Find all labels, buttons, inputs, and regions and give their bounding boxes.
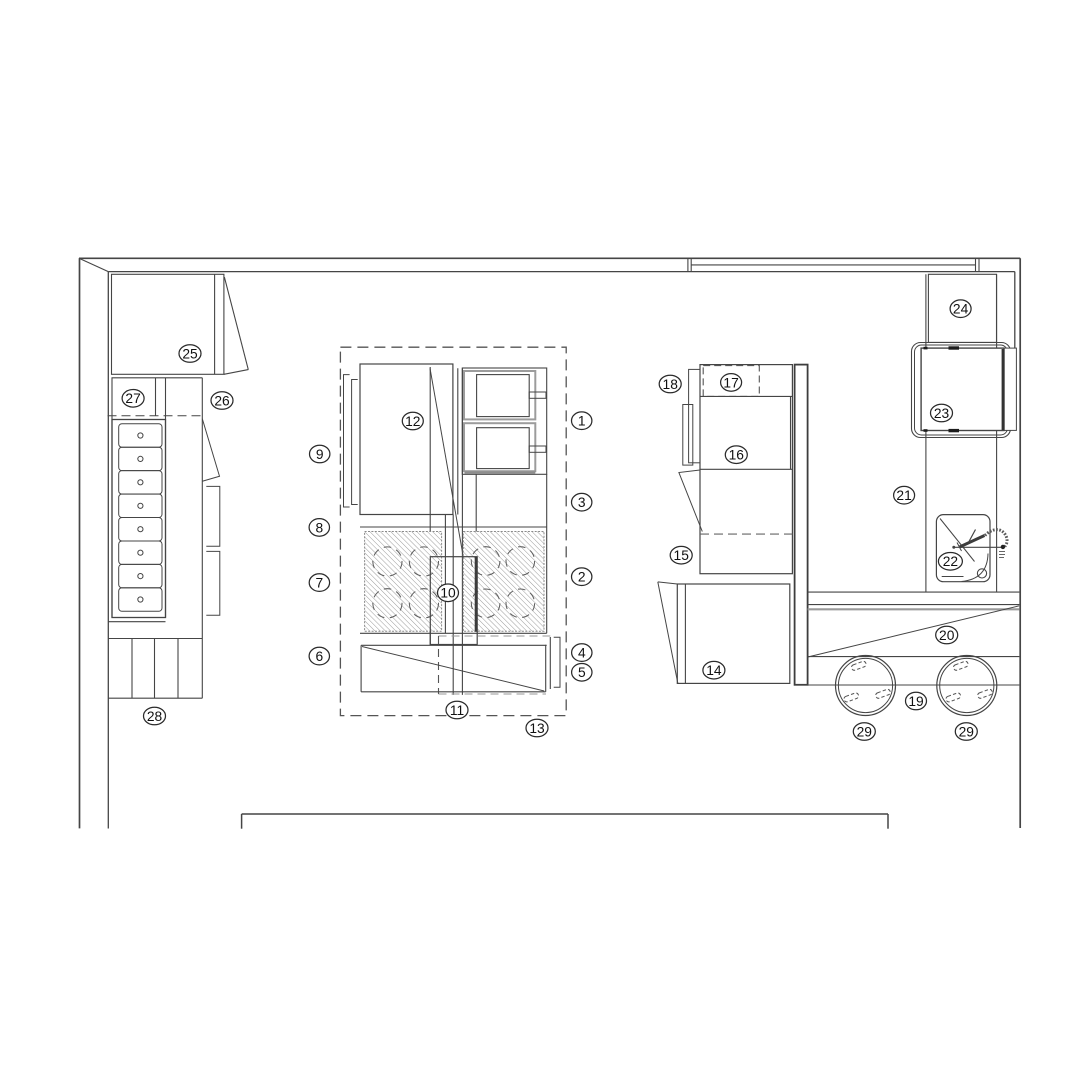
svg-text:29: 29	[959, 724, 975, 739]
svg-text:20: 20	[939, 628, 955, 643]
svg-text:26: 26	[214, 393, 230, 408]
svg-text:10: 10	[440, 586, 456, 601]
svg-text:14: 14	[706, 663, 722, 678]
svg-text:11: 11	[450, 703, 464, 718]
svg-text:1: 1	[578, 414, 586, 429]
svg-text:28: 28	[147, 709, 163, 724]
svg-text:4: 4	[578, 646, 586, 661]
svg-text:13: 13	[529, 721, 545, 736]
svg-text:24: 24	[953, 302, 969, 317]
svg-text:12: 12	[405, 414, 420, 429]
svg-text:27: 27	[125, 391, 140, 406]
svg-text:9: 9	[316, 447, 324, 462]
svg-text:19: 19	[908, 694, 924, 709]
svg-text:3: 3	[578, 495, 586, 510]
svg-text:21: 21	[896, 488, 911, 503]
svg-text:23: 23	[934, 406, 950, 421]
svg-text:15: 15	[674, 548, 690, 563]
svg-text:16: 16	[729, 448, 745, 463]
svg-text:8: 8	[315, 520, 323, 535]
svg-text:18: 18	[663, 377, 679, 392]
svg-text:5: 5	[578, 665, 586, 680]
svg-text:6: 6	[315, 649, 323, 664]
svg-text:2: 2	[578, 570, 586, 585]
svg-text:29: 29	[857, 724, 873, 739]
svg-text:22: 22	[943, 554, 958, 569]
svg-text:25: 25	[182, 346, 198, 361]
svg-text:7: 7	[316, 576, 324, 591]
svg-text:17: 17	[723, 375, 738, 390]
